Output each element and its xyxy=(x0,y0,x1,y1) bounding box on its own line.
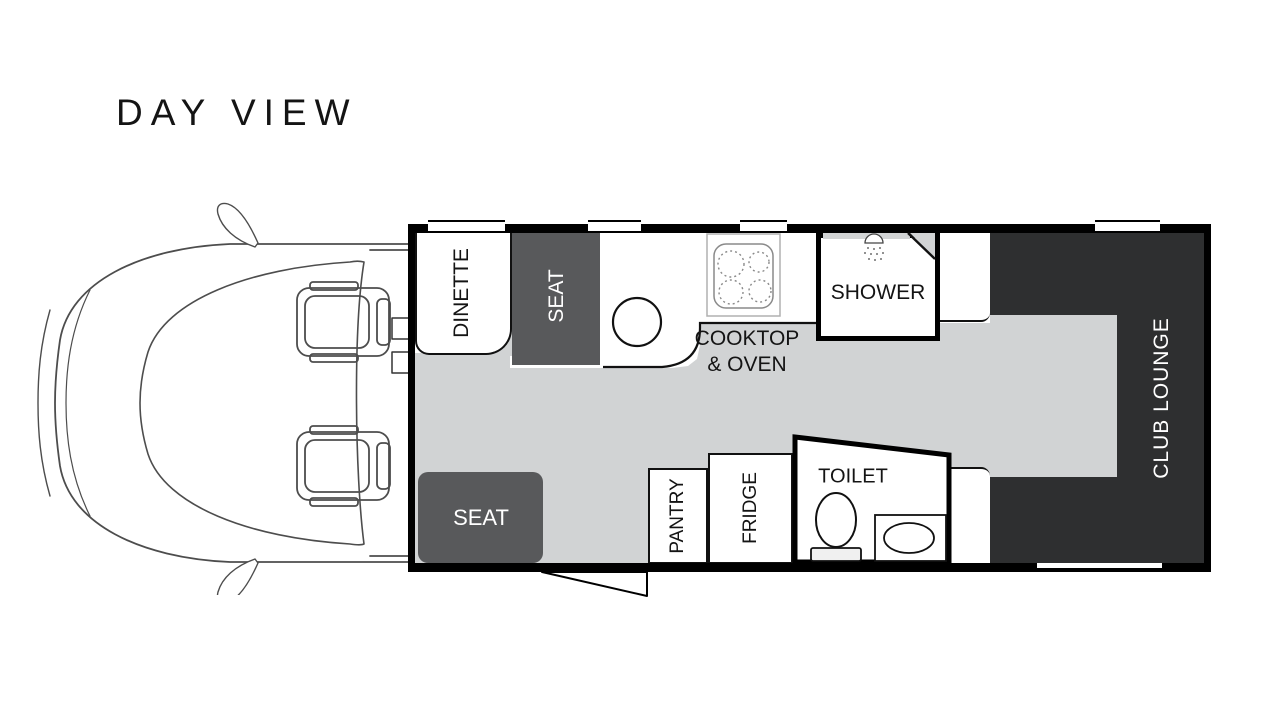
shower-head-icon xyxy=(864,234,884,261)
fridge-label: FRIDGE xyxy=(740,472,762,544)
plan-details-overlay xyxy=(0,0,1280,720)
shower-label: SHOWER xyxy=(831,281,926,305)
front-seat-label: SEAT xyxy=(545,269,569,322)
club-lounge-label: CLUB LOUNGE xyxy=(1150,317,1174,479)
cooktop-oven-label: COOKTOP & OVEN xyxy=(695,326,800,378)
dinette-label: DINETTE xyxy=(450,248,474,338)
entry-seat-label: SEAT xyxy=(453,505,509,531)
kitchen-sink-icon xyxy=(613,298,661,346)
cooktop-icon xyxy=(707,234,780,316)
toilet-label: TOILET xyxy=(818,466,888,489)
toilet-room xyxy=(795,437,949,562)
bathroom-basin-icon xyxy=(875,515,946,561)
entry-door-icon xyxy=(542,572,647,596)
pantry-label: PANTRY xyxy=(667,478,689,553)
floorplan-canvas: DAY VIEW xyxy=(0,0,1280,720)
